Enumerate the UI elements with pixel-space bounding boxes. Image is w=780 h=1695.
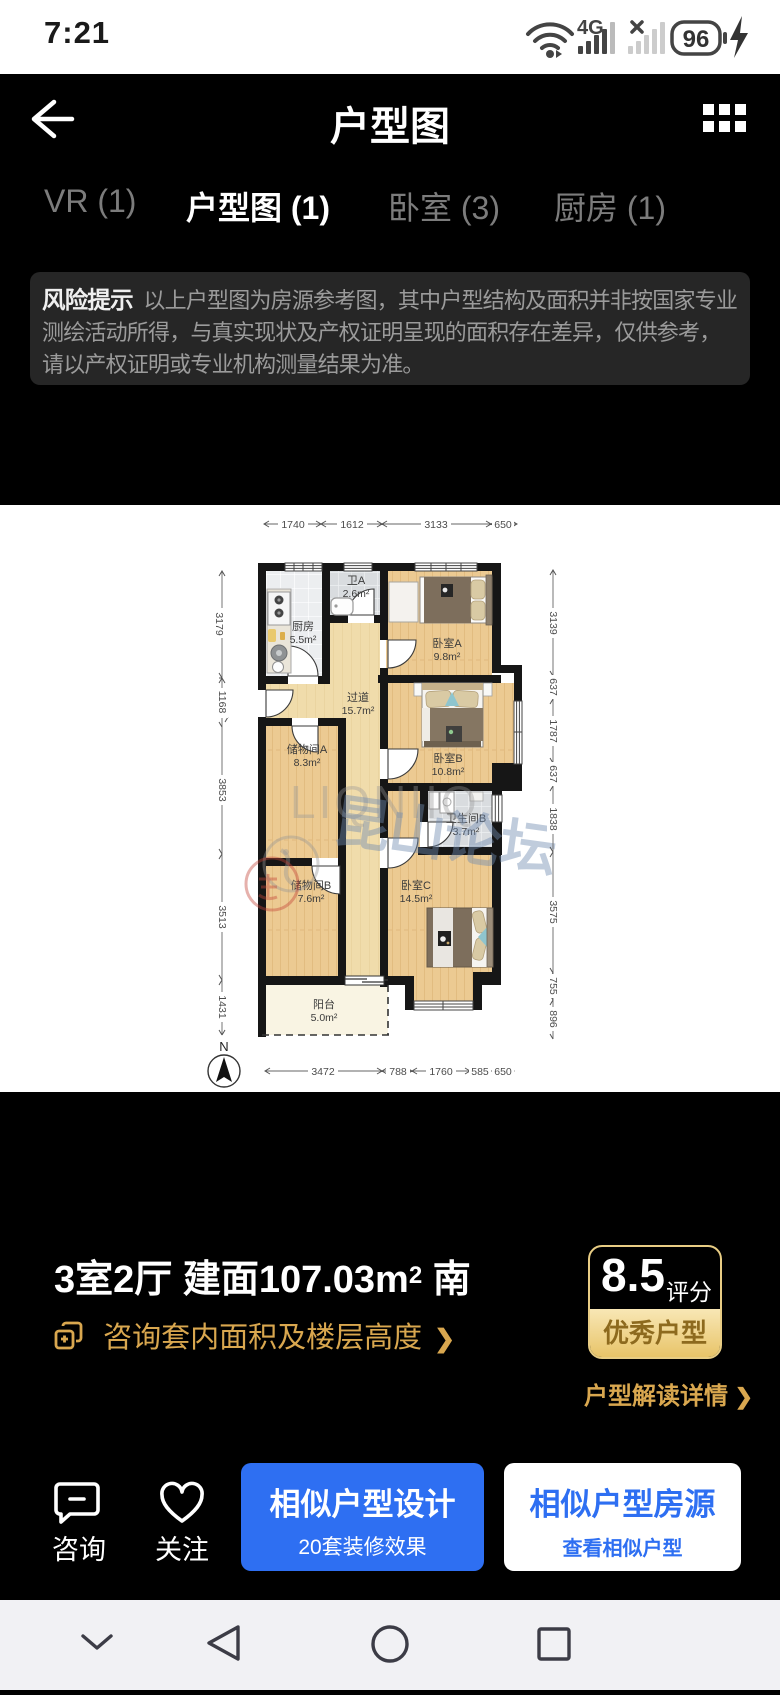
svg-text:9.8m²: 9.8m² [434,651,461,663]
svg-text:585: 585 [471,1066,489,1078]
svg-text:阳台: 阳台 [313,997,335,1011]
svg-text:3472: 3472 [311,1066,335,1078]
svg-text:4G: 4G [577,17,604,39]
svg-text:5.5m²: 5.5m² [290,634,317,646]
svg-text:14.5m²: 14.5m² [400,893,433,905]
svg-text:3575: 3575 [547,900,559,924]
svg-text:2.6m²: 2.6m² [343,588,370,600]
svg-text:1612: 1612 [340,519,364,531]
svg-text:5.0m²: 5.0m² [311,1012,338,1024]
svg-text:3513: 3513 [216,905,228,929]
svg-text:卧室A: 卧室A [432,636,462,650]
svg-text:637: 637 [547,678,559,696]
svg-text:3139: 3139 [547,611,559,635]
svg-text:96: 96 [683,26,710,53]
svg-text:1787: 1787 [547,719,559,743]
svg-text:卧室B: 卧室B [433,751,462,765]
svg-text:N: N [219,1039,228,1054]
svg-text:8.3m²: 8.3m² [294,757,321,769]
svg-text:卧室C: 卧室C [401,878,431,892]
svg-text:卫A: 卫A [347,575,366,587]
svg-text:650: 650 [494,519,512,531]
svg-text:3133: 3133 [424,519,448,531]
svg-text:厨房: 厨房 [292,620,314,633]
svg-text:637: 637 [547,765,559,783]
svg-text:15.7m²: 15.7m² [342,705,375,717]
svg-text:1168: 1168 [216,691,228,714]
svg-text:过道: 过道 [347,690,369,704]
svg-text:3853: 3853 [216,778,228,802]
svg-text:1431: 1431 [216,995,228,1019]
svg-text:896: 896 [547,1010,559,1028]
svg-text:788: 788 [389,1066,407,1078]
svg-text:1838: 1838 [547,807,559,831]
svg-text:1740: 1740 [281,519,305,531]
svg-text:1760: 1760 [429,1066,453,1078]
svg-text:755: 755 [547,977,559,995]
svg-text:储物间A: 储物间A [287,742,328,756]
svg-text:7.6m²: 7.6m² [298,893,325,905]
svg-text:650: 650 [494,1066,512,1078]
svg-text:3179: 3179 [213,612,225,636]
